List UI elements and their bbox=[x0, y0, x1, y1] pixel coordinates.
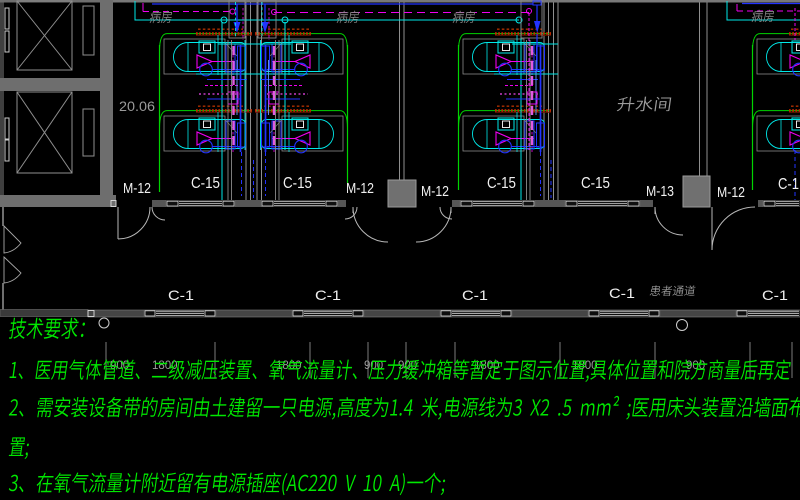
svg-text:C-15: C-15 bbox=[581, 175, 610, 192]
svg-text:C-1: C-1 bbox=[315, 287, 341, 303]
svg-text:20.06: 20.06 bbox=[119, 99, 155, 114]
svg-text:C-1: C-1 bbox=[168, 287, 194, 303]
svg-text:C-1: C-1 bbox=[762, 287, 788, 303]
svg-text:M-12: M-12 bbox=[123, 180, 151, 197]
svg-text:M-13: M-13 bbox=[646, 183, 674, 200]
svg-text:C-1: C-1 bbox=[609, 285, 635, 301]
svg-text:M-12: M-12 bbox=[421, 183, 449, 200]
svg-text:C-1: C-1 bbox=[462, 287, 488, 303]
svg-text:C-15: C-15 bbox=[487, 175, 516, 192]
svg-text:M-12: M-12 bbox=[346, 180, 374, 197]
svg-text:C-15: C-15 bbox=[283, 175, 312, 192]
svg-text:M-12: M-12 bbox=[717, 184, 745, 201]
svg-text:C-1: C-1 bbox=[778, 176, 799, 193]
svg-text:C-15: C-15 bbox=[191, 175, 220, 192]
